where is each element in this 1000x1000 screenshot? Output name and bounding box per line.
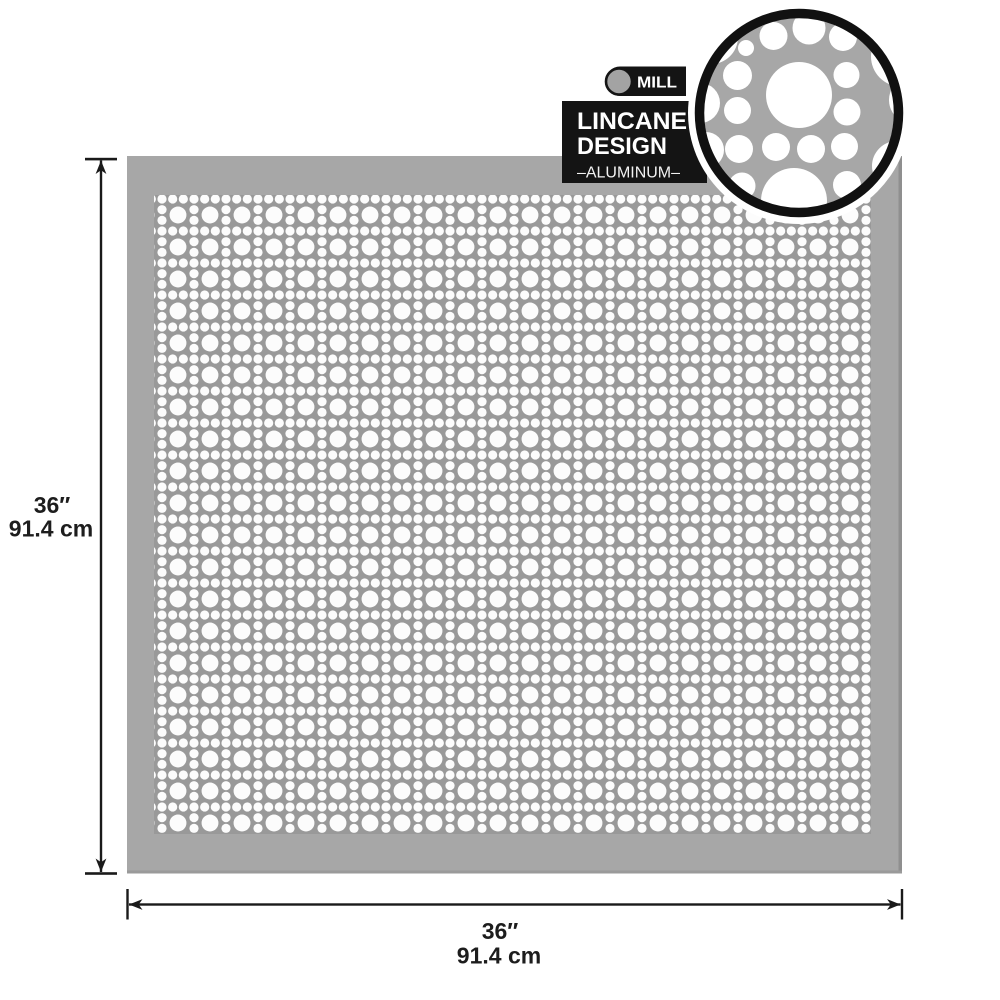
svg-text:91.4 cm: 91.4 cm bbox=[9, 516, 93, 542]
svg-text:36″: 36″ bbox=[482, 918, 519, 944]
svg-text:–ALUMINUM–: –ALUMINUM– bbox=[577, 165, 680, 182]
svg-text:LINCANE: LINCANE bbox=[577, 108, 687, 135]
svg-text:DESIGN: DESIGN bbox=[577, 133, 667, 160]
svg-text:36″: 36″ bbox=[34, 492, 71, 518]
svg-text:91.4 cm: 91.4 cm bbox=[457, 943, 541, 969]
svg-text:MILL: MILL bbox=[637, 75, 677, 92]
